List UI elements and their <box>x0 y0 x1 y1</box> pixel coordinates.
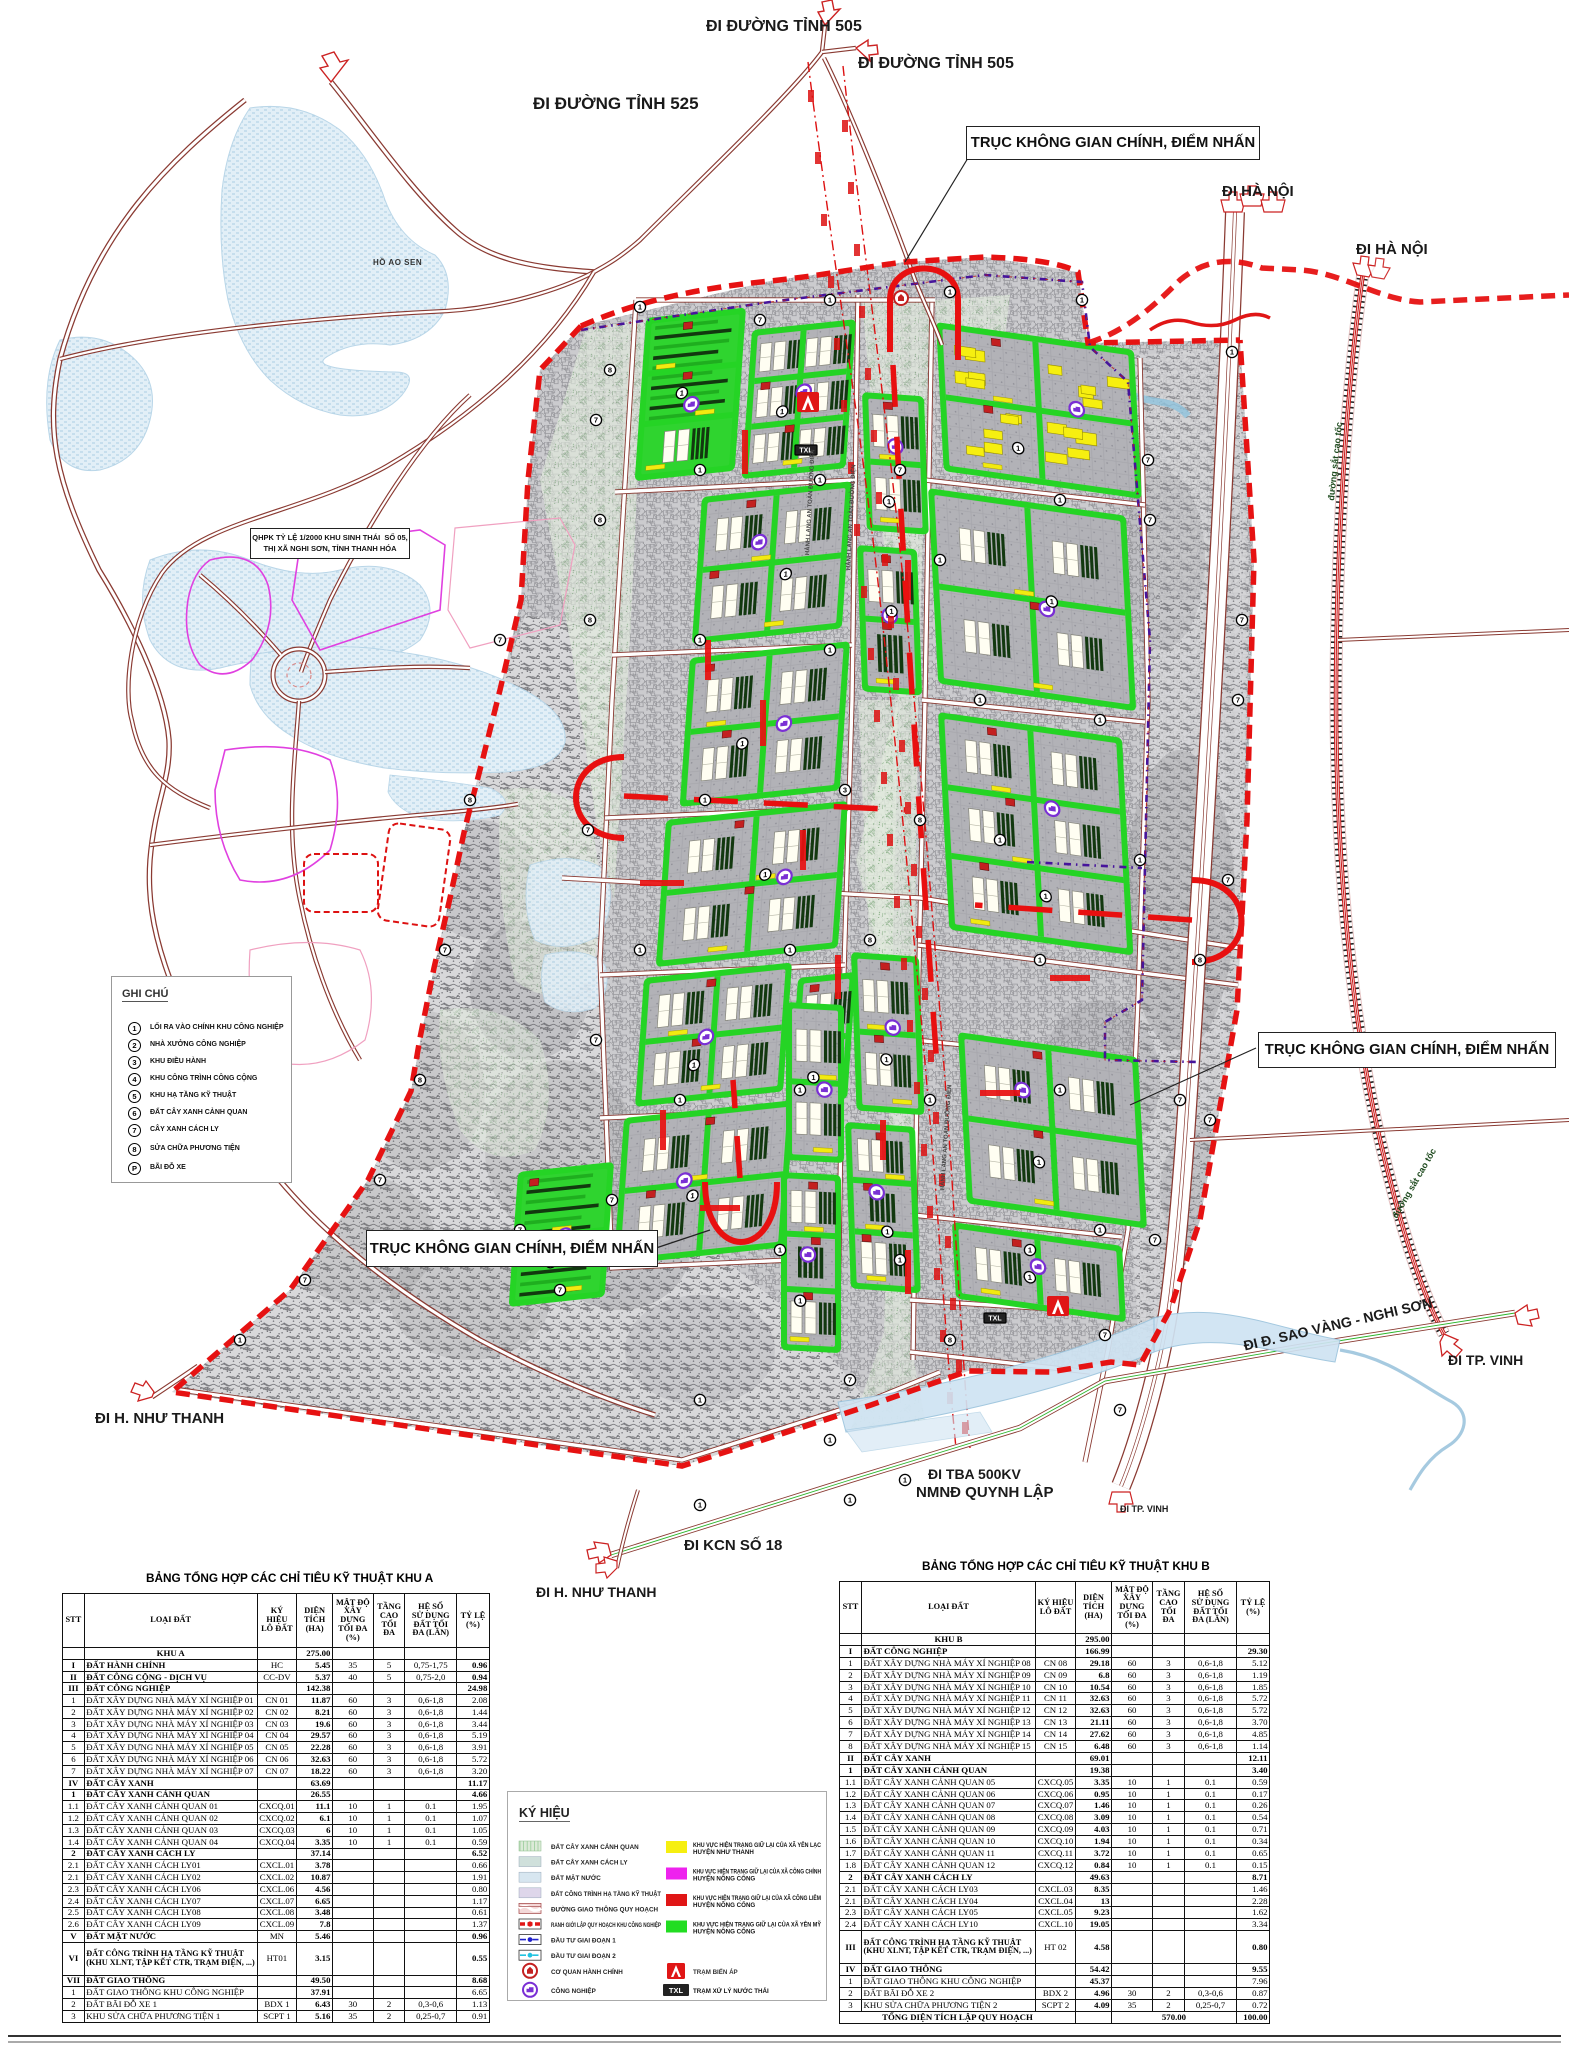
svg-text:1: 1 <box>898 1256 902 1265</box>
svg-text:1: 1 <box>1028 1246 1032 1255</box>
svg-text:7: 7 <box>443 946 447 955</box>
svg-text:7: 7 <box>558 1286 562 1295</box>
svg-text:1: 1 <box>1080 296 1084 305</box>
svg-text:7: 7 <box>1118 1406 1122 1415</box>
svg-text:8: 8 <box>868 936 872 945</box>
svg-text:ĐẤT CÔNG TRÌNH HẠ TẦNG KỸ THUẬ: ĐẤT CÔNG TRÌNH HẠ TẦNG KỸ THUẬT <box>551 1888 661 1898</box>
svg-text:1: 1 <box>903 1476 907 1485</box>
svg-text:7: 7 <box>848 1376 852 1385</box>
svg-text:ĐẦU TƯ GIAI ĐOẠN 1: ĐẦU TƯ GIAI ĐOẠN 1 <box>551 1935 616 1945</box>
svg-text:KHU VỰC HIỆN TRẠNG GIỮ LẠI CỦA: KHU VỰC HIỆN TRẠNG GIỮ LẠI CỦA XÃ YÊN LẠ… <box>693 1841 821 1849</box>
svg-text:1: 1 <box>885 1227 889 1236</box>
svg-text:1: 1 <box>1038 956 1042 965</box>
svg-text:ĐẦU TƯ GIAI ĐOẠN 2: ĐẦU TƯ GIAI ĐOẠN 2 <box>551 1950 616 1960</box>
svg-text:7: 7 <box>594 1036 598 1045</box>
svg-text:TXL: TXL <box>669 1986 684 1995</box>
svg-text:7: 7 <box>1103 1331 1107 1340</box>
svg-text:1: 1 <box>811 1073 815 1082</box>
svg-text:1: 1 <box>238 1336 242 1345</box>
svg-text:1: 1 <box>780 407 785 416</box>
svg-text:1: 1 <box>1138 856 1142 865</box>
svg-text:1: 1 <box>778 1246 782 1255</box>
svg-text:1: 1 <box>1037 1158 1042 1168</box>
svg-text:CÔNG NGHIỆP: CÔNG NGHIỆP <box>551 1986 596 1995</box>
svg-text:7: 7 <box>586 826 590 835</box>
svg-text:7: 7 <box>1146 456 1150 465</box>
svg-text:1: 1 <box>1058 496 1062 505</box>
svg-text:1: 1 <box>1028 1273 1033 1283</box>
svg-text:1: 1 <box>690 1191 695 1200</box>
svg-text:1: 1 <box>1016 443 1021 453</box>
svg-text:1: 1 <box>678 1096 682 1105</box>
svg-text:1: 1 <box>928 1096 932 1105</box>
svg-text:1: 1 <box>638 303 642 312</box>
svg-text:1: 1 <box>698 466 702 475</box>
svg-text:1: 1 <box>889 607 893 616</box>
svg-text:1: 1 <box>740 739 745 748</box>
svg-text:7: 7 <box>498 636 502 645</box>
svg-text:1: 1 <box>783 569 788 578</box>
svg-text:1: 1 <box>887 497 891 506</box>
svg-text:1: 1 <box>698 636 702 645</box>
svg-text:7: 7 <box>1236 696 1240 705</box>
svg-text:1: 1 <box>638 946 642 955</box>
svg-text:KHU VỰC HIỆN TRẠNG GIỮ LẠI CỦA: KHU VỰC HIỆN TRẠNG GIỮ LẠI CỦA XÃ YÊN MỸ <box>693 1921 822 1929</box>
svg-text:ĐƯỜNG GIAO THÔNG QUY HOẠCH: ĐƯỜNG GIAO THÔNG QUY HOẠCH <box>551 1904 658 1913</box>
svg-text:1: 1 <box>828 1436 832 1445</box>
svg-text:8: 8 <box>918 816 922 825</box>
svg-text:7: 7 <box>303 1276 307 1285</box>
svg-text:1: 1 <box>828 646 832 655</box>
svg-text:8: 8 <box>588 616 592 625</box>
svg-text:1: 1 <box>692 1060 697 1069</box>
svg-text:1: 1 <box>698 1396 702 1405</box>
svg-text:1: 1 <box>798 1296 802 1305</box>
svg-text:7: 7 <box>1240 616 1244 625</box>
svg-text:1: 1 <box>1050 597 1055 607</box>
svg-text:1: 1 <box>788 946 792 955</box>
svg-text:8: 8 <box>608 366 612 375</box>
svg-text:8: 8 <box>1198 956 1202 965</box>
svg-text:TXL: TXL <box>988 1316 1002 1323</box>
svg-text:8: 8 <box>418 1076 422 1085</box>
svg-text:8: 8 <box>468 796 472 805</box>
svg-text:1: 1 <box>884 1055 888 1064</box>
svg-text:1: 1 <box>1230 348 1234 357</box>
svg-text:1: 1 <box>763 870 768 879</box>
svg-text:7: 7 <box>898 466 902 475</box>
svg-text:7: 7 <box>758 316 762 325</box>
svg-text:7: 7 <box>594 416 598 425</box>
svg-text:CƠ QUAN HÀNH CHÍNH: CƠ QUAN HÀNH CHÍNH <box>551 1967 623 1976</box>
svg-text:8: 8 <box>598 516 602 525</box>
svg-text:1: 1 <box>818 476 822 485</box>
svg-text:1: 1 <box>948 288 952 297</box>
svg-text:RANH GIỚI LẬP QUY HOẠCH KHU CÔ: RANH GIỚI LẬP QUY HOẠCH KHU CÔNG NGHIỆP <box>551 1920 661 1929</box>
svg-text:KHU VỰC HIỆN TRẠNG GIỮ LẠI CỦA: KHU VỰC HIỆN TRẠNG GIỮ LẠI CỦA XÃ CÔNG C… <box>693 1868 821 1876</box>
svg-text:1: 1 <box>1058 1086 1062 1095</box>
svg-text:1: 1 <box>698 1501 702 1510</box>
svg-text:7: 7 <box>1153 1236 1157 1245</box>
svg-text:1: 1 <box>798 1086 802 1095</box>
svg-text:TRẠM XỬ LÝ NƯỚC THẢI: TRẠM XỬ LÝ NƯỚC THẢI <box>693 1987 769 1995</box>
svg-text:ĐẤT MẶT NƯỚC: ĐẤT MẶT NƯỚC <box>551 1872 601 1882</box>
svg-text:1: 1 <box>1043 891 1048 901</box>
svg-text:7: 7 <box>1148 516 1152 525</box>
svg-text:HUYỆN NÔNG CỐNG: HUYỆN NÔNG CỐNG <box>693 1901 755 1909</box>
svg-text:HUYỆN NHƯ THANH: HUYỆN NHƯ THANH <box>693 1848 754 1856</box>
svg-text:KHU VỰC HIỆN TRẠNG GIỮ LẠI CỦA: KHU VỰC HIỆN TRẠNG GIỮ LẠI CỦA XÃ CÔNG L… <box>693 1894 821 1902</box>
svg-text:HUYỆN NÔNG CỐNG: HUYỆN NÔNG CỐNG <box>693 1928 755 1936</box>
svg-text:TRẠM BIẾN ÁP: TRẠM BIẾN ÁP <box>693 1969 738 1976</box>
svg-text:ĐẤT CÂY XANH CẢNH QUAN: ĐẤT CÂY XANH CẢNH QUAN <box>551 1841 639 1851</box>
svg-text:1: 1 <box>703 796 707 805</box>
svg-text:3: 3 <box>843 786 847 795</box>
svg-text:7: 7 <box>610 1196 614 1205</box>
svg-text:8: 8 <box>948 1336 952 1345</box>
svg-text:HUYỆN NÔNG CỐNG: HUYỆN NÔNG CỐNG <box>693 1875 755 1883</box>
svg-text:7: 7 <box>1226 876 1230 885</box>
svg-text:7: 7 <box>1178 1096 1182 1105</box>
svg-text:1: 1 <box>938 556 942 565</box>
svg-text:7: 7 <box>1208 1116 1212 1125</box>
svg-text:1: 1 <box>828 296 832 305</box>
svg-text:1: 1 <box>998 836 1002 845</box>
svg-text:1: 1 <box>978 696 982 705</box>
svg-text:1: 1 <box>848 1496 852 1505</box>
svg-text:ĐẤT CÂY XANH CÁCH LY: ĐẤT CÂY XANH CÁCH LY <box>551 1857 628 1867</box>
svg-text:1: 1 <box>1098 716 1102 725</box>
svg-text:1: 1 <box>679 388 684 397</box>
svg-text:1: 1 <box>1098 1226 1102 1235</box>
svg-text:7: 7 <box>378 1176 382 1185</box>
